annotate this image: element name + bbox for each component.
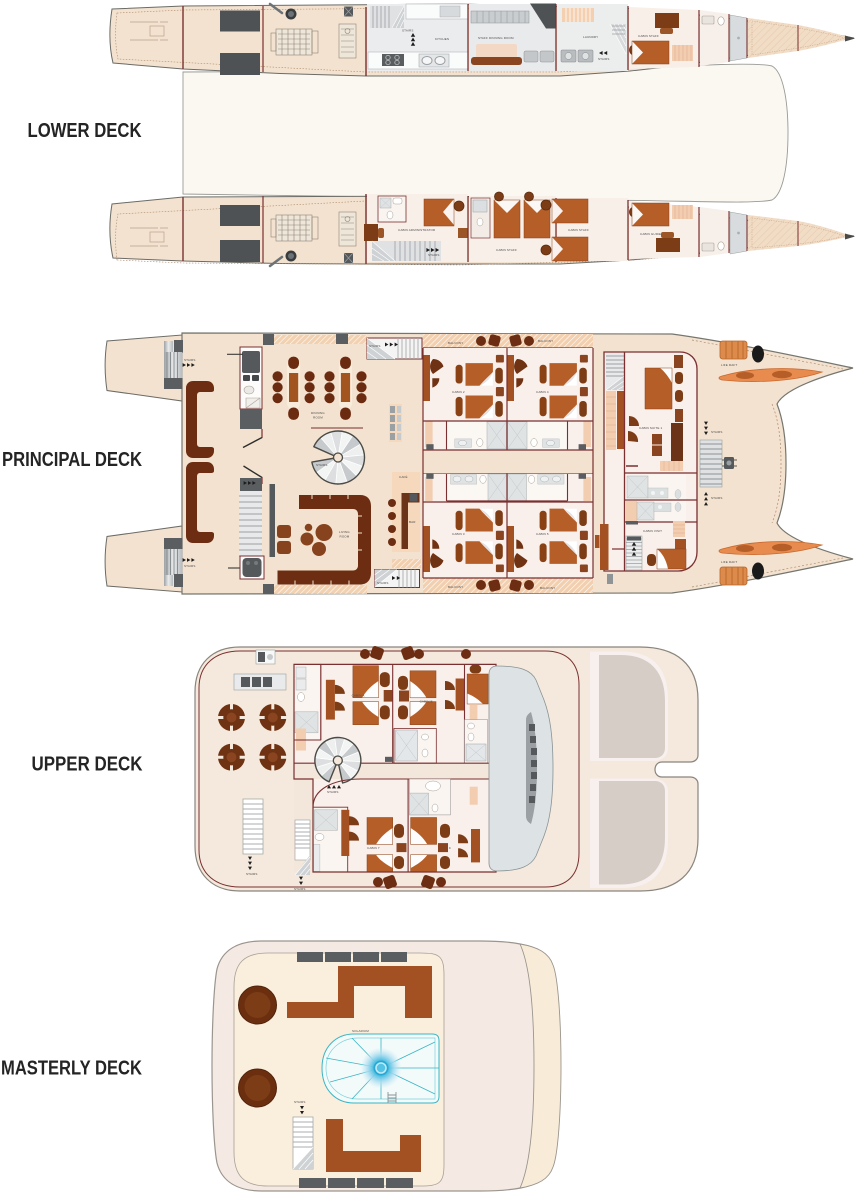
svg-text:CABIN 3: CABIN 3 [452,532,465,536]
svg-text:CABIN STAFF: CABIN STAFF [496,248,517,252]
svg-text:BALCONY: BALCONY [540,586,555,590]
svg-text:CABIN STAFF: CABIN STAFF [638,34,659,38]
svg-text:CABIN 7: CABIN 7 [367,846,380,850]
svg-text:UPPER DECK: UPPER DECK [32,753,143,776]
svg-text:STAIRS: STAIRS [598,57,610,61]
svg-text:LIVING: LIVING [339,530,350,534]
svg-text:CABIN ADMINISTRATOR: CABIN ADMINISTRATOR [398,228,436,232]
svg-text:LAUNDRY: LAUNDRY [583,35,598,39]
svg-text:MASTERLY DECK: MASTERLY DECK [1,1057,142,1080]
svg-text:CABIN STAFF: CABIN STAFF [568,228,589,232]
svg-text:LIFE RAFT: LIFE RAFT [721,363,737,367]
svg-text:STAIRS: STAIRS [184,564,196,568]
svg-text:CABIN A: CABIN A [352,694,365,698]
svg-text:CAFÉ: CAFÉ [399,474,408,479]
svg-text:STAIRS: STAIRS [369,344,381,348]
svg-text:STAIRS: STAIRS [711,496,723,500]
svg-text:STAIRS: STAIRS [246,872,258,876]
svg-text:ROOM: ROOM [340,535,350,539]
svg-text:BAR: BAR [409,520,416,524]
svg-text:STAIRS: STAIRS [184,358,196,362]
svg-text:SOLARIUM: SOLARIUM [352,1029,369,1033]
svg-text:CABIN 2: CABIN 2 [452,390,465,394]
svg-text:ROOM: ROOM [313,416,323,420]
svg-text:KITCHEN: KITCHEN [435,37,449,41]
svg-text:STAIRS: STAIRS [402,29,414,33]
svg-text:BALCONY: BALCONY [448,585,463,589]
svg-text:CABIN B: CABIN B [420,700,433,704]
svg-text:STAIRS: STAIRS [316,463,328,467]
svg-text:PRINCIPAL DECK: PRINCIPAL DECK [2,448,142,471]
svg-text:STAFF DINNING ROOM: STAFF DINNING ROOM [478,36,514,40]
svg-text:CABIN 5: CABIN 5 [536,532,549,536]
svg-text:CABIN VISIT: CABIN VISIT [643,529,662,533]
svg-text:CABIN GUIDE: CABIN GUIDE [640,232,661,236]
svg-text:STAIRS: STAIRS [294,1100,306,1104]
svg-text:BALCONY: BALCONY [448,341,463,345]
svg-text:LOWER DECK: LOWER DECK [28,119,142,142]
svg-text:STAIRS: STAIRS [428,253,440,257]
svg-text:STAIRS: STAIRS [327,790,339,794]
svg-text:CABIN 4: CABIN 4 [536,390,549,394]
svg-text:STAIRS: STAIRS [294,887,306,891]
svg-text:STAIRS: STAIRS [377,581,389,585]
svg-text:LIFE RAFT: LIFE RAFT [721,560,737,564]
svg-text:DINNING: DINNING [311,411,325,415]
svg-text:BALCONY: BALCONY [538,339,553,343]
svg-text:CABIN SUITE 1: CABIN SUITE 1 [639,426,662,430]
svg-text:STAIRS: STAIRS [711,430,723,434]
